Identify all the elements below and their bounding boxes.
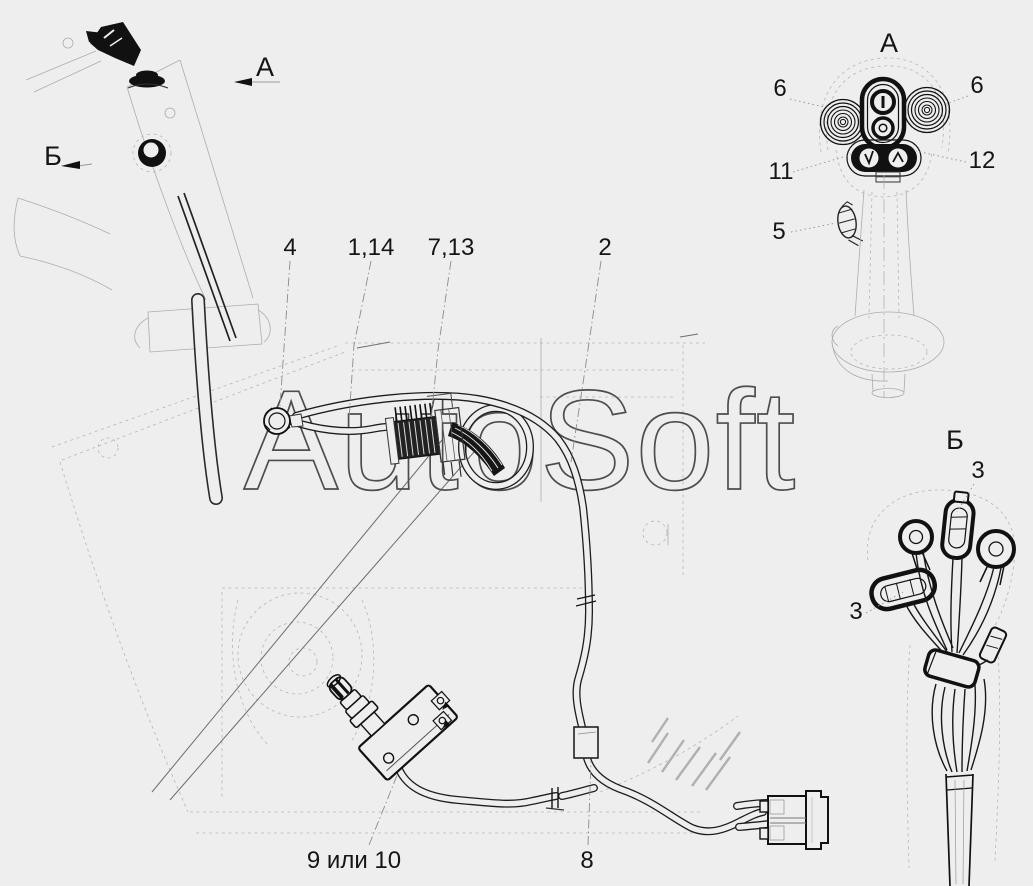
detail-b-title: Б — [946, 425, 964, 455]
micro-switch — [311, 629, 462, 781]
callout-7-13: 7,13 — [428, 234, 475, 261]
wire-strands-lower — [932, 679, 985, 772]
watermark-text: AutoSoft — [244, 361, 797, 520]
knob-right — [905, 88, 950, 133]
callout-4: 4 — [283, 234, 296, 261]
parts-diagram-page: AutoSoft — [0, 0, 1033, 886]
callout-9-or-10: 9 или 10 — [307, 847, 401, 874]
callout-11: 11 — [769, 158, 794, 185]
view-arrow-a: А — [234, 52, 280, 86]
callout-5: 5 — [772, 218, 785, 245]
view-arrow-b: Б — [44, 141, 92, 171]
connector-3-middle — [941, 491, 976, 560]
view-arrow-a-icon — [234, 78, 252, 86]
harness-sleeve — [923, 648, 980, 688]
callout-3-top: 3 — [971, 457, 984, 484]
knob-left — [821, 100, 866, 145]
callout-6-left: 6 — [773, 75, 786, 102]
view-label-b: Б — [44, 141, 62, 171]
cable-ferrule — [574, 727, 598, 758]
clip-5 — [835, 200, 863, 248]
callout-3-side: 3 — [849, 598, 862, 625]
harness-cable — [946, 774, 973, 886]
callout-2: 2 — [598, 234, 611, 261]
view-arrow-b-icon — [61, 161, 80, 169]
detail-view-b — [867, 490, 1015, 886]
callout-6-right: 6 — [970, 72, 983, 99]
side-terminal — [979, 626, 1008, 664]
detail-view-a — [819, 58, 950, 398]
view-label-a: А — [256, 52, 274, 82]
center-switch-pod — [862, 79, 904, 148]
parts-diagram-canvas: AutoSoft — [0, 0, 1033, 886]
section-hatching — [648, 718, 740, 790]
detail-a-title: А — [880, 28, 898, 58]
callout-8: 8 — [580, 847, 593, 874]
callout-1-14: 1,14 — [348, 234, 395, 261]
callout-12: 12 — [969, 147, 996, 174]
